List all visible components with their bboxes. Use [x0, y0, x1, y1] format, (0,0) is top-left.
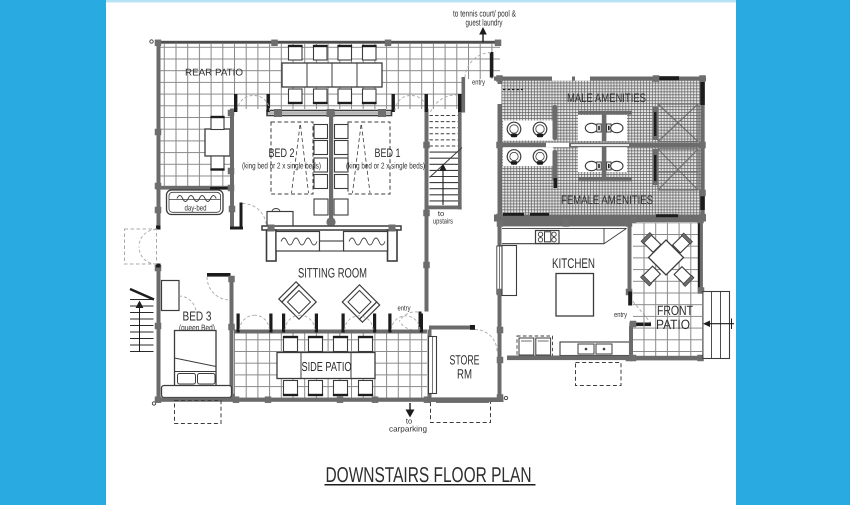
svg-text:entry: entry	[472, 78, 485, 87]
svg-text:day-bed: day-bed	[185, 204, 207, 213]
svg-text:RM: RM	[457, 367, 472, 382]
svg-text:(king bed or 2 x single beds): (king bed or 2 x single beds)	[242, 161, 321, 171]
svg-text:MALE AMENITIES: MALE AMENITIES	[567, 91, 646, 105]
svg-text:PATIO: PATIO	[656, 317, 690, 332]
svg-text:guest laundry: guest laundry	[466, 18, 503, 28]
svg-text:SIDE PATIO: SIDE PATIO	[302, 359, 352, 374]
svg-text:BED 1: BED 1	[375, 146, 401, 160]
svg-text:FRONT: FRONT	[657, 303, 693, 318]
svg-text:BED 3: BED 3	[183, 309, 212, 324]
svg-text:KITCHEN: KITCHEN	[552, 255, 595, 271]
svg-text:carparking: carparking	[389, 425, 427, 434]
svg-text:SITTING ROOM: SITTING ROOM	[298, 265, 367, 280]
svg-text:entry: entry	[614, 310, 627, 319]
svg-text:FEMALE AMENITIES: FEMALE AMENITIES	[561, 193, 653, 207]
svg-text:STORE: STORE	[450, 353, 480, 368]
svg-text:(king bed or 2 x single beds): (king bed or 2 x single beds)	[346, 161, 425, 171]
svg-text:DOWNSTAIRS FLOOR PLAN: DOWNSTAIRS FLOOR PLAN	[326, 463, 532, 487]
svg-text:upstairs: upstairs	[433, 217, 453, 226]
svg-text:entry: entry	[398, 304, 411, 313]
svg-text:REAR PATIO: REAR PATIO	[185, 68, 243, 79]
svg-text:BED 2: BED 2	[269, 146, 295, 160]
